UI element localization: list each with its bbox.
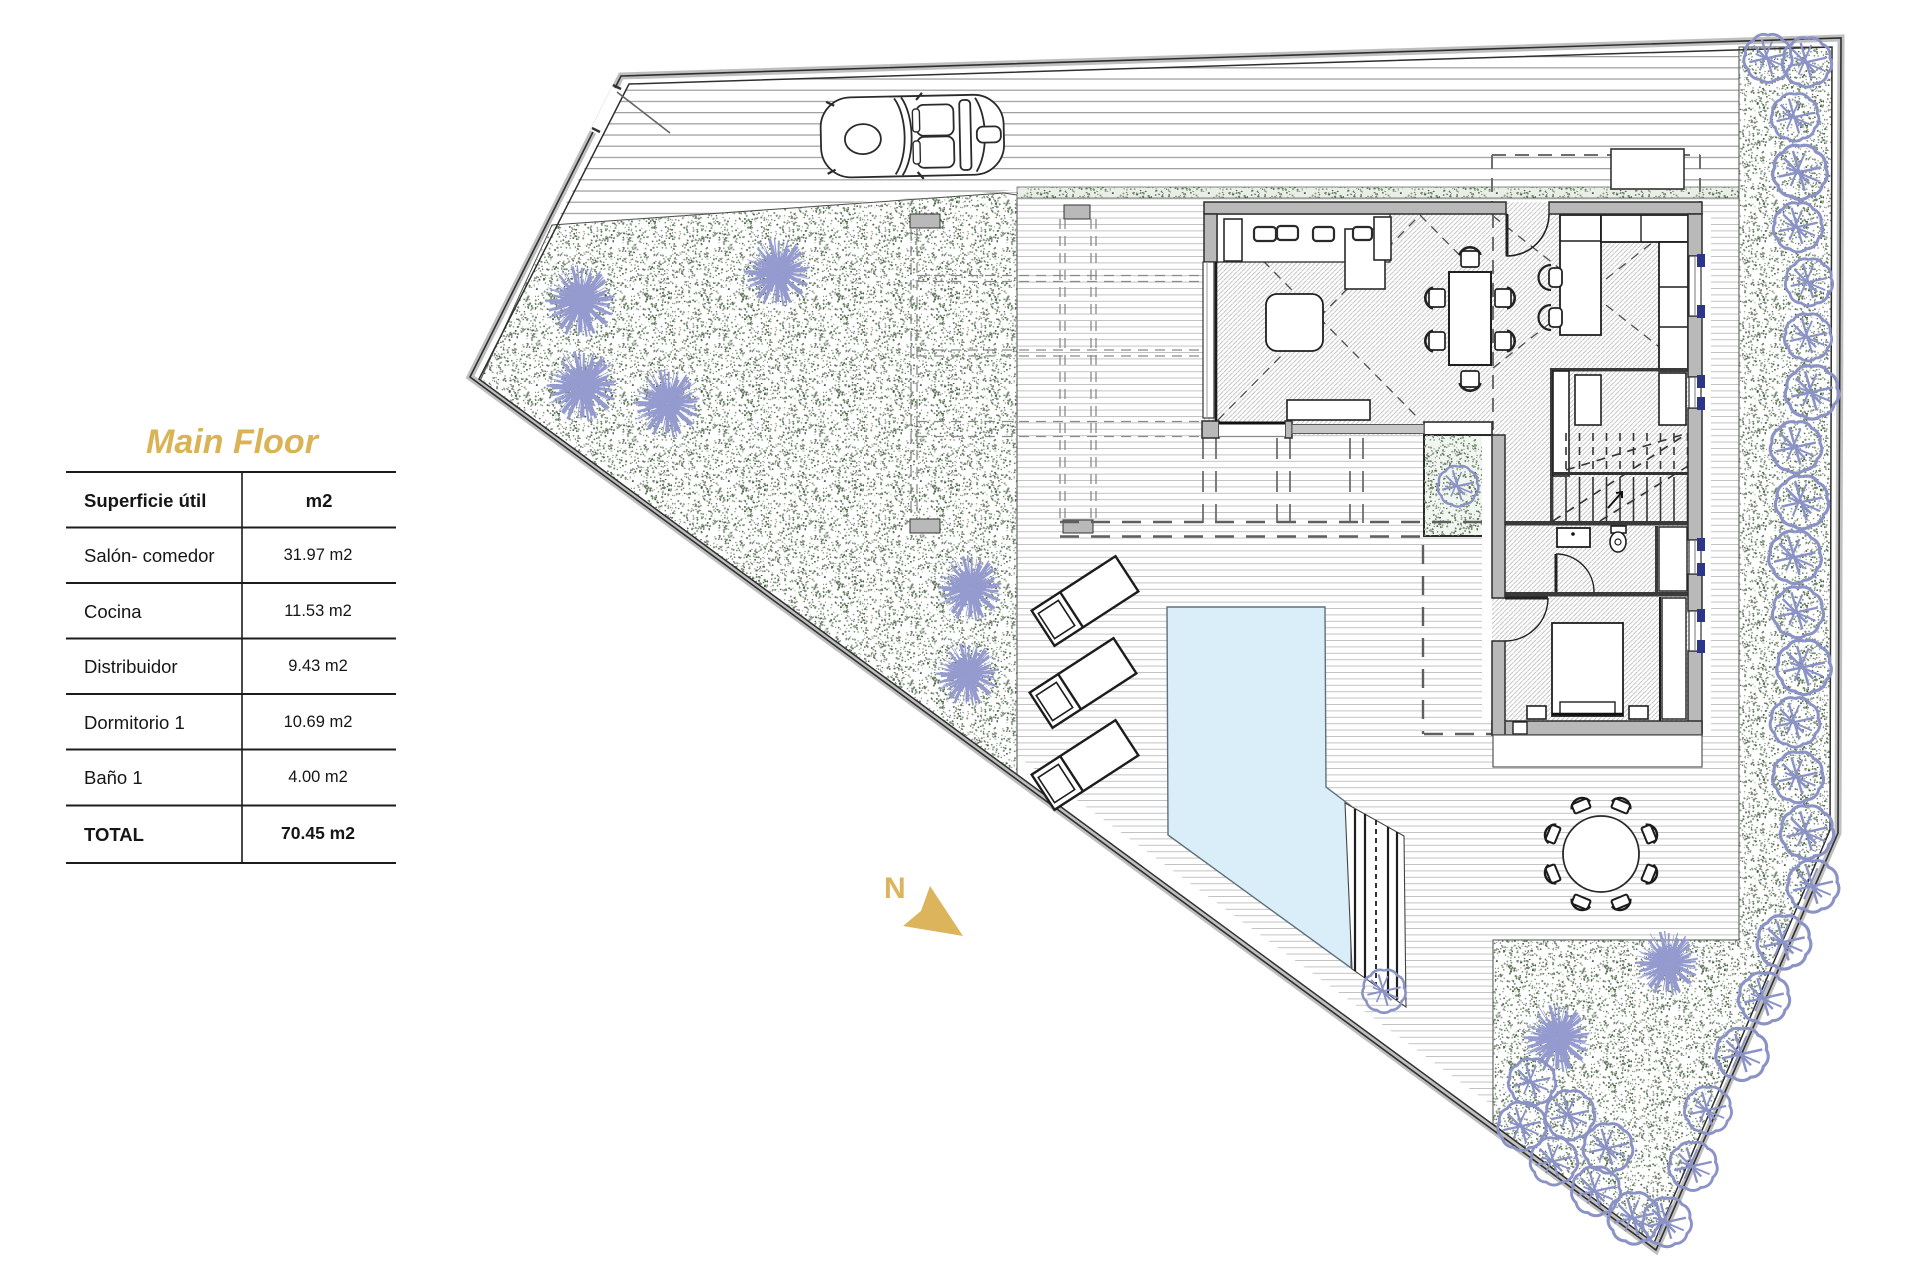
svg-text:11.53 m2: 11.53 m2	[284, 602, 352, 620]
svg-text:10.69 m2: 10.69 m2	[284, 713, 353, 731]
svg-text:TOTAL: TOTAL	[84, 824, 144, 845]
svg-text:Main Floor: Main Floor	[146, 423, 320, 461]
svg-text:Distribuidor: Distribuidor	[84, 656, 178, 677]
svg-text:70.45 m2: 70.45 m2	[281, 823, 355, 843]
svg-text:Baño 1: Baño 1	[84, 767, 143, 788]
svg-text:31.97 m2: 31.97 m2	[284, 546, 353, 564]
svg-text:Superficie útil: Superficie útil	[84, 490, 206, 511]
svg-text:4.00 m2: 4.00 m2	[288, 768, 348, 786]
svg-text:Dormitorio 1: Dormitorio 1	[84, 712, 185, 733]
svg-text:Cocina: Cocina	[84, 601, 142, 622]
svg-text:9.43 m2: 9.43 m2	[288, 657, 348, 675]
svg-text:N: N	[884, 872, 906, 905]
svg-text:m2: m2	[306, 490, 333, 511]
svg-text:Salón- comedor: Salón- comedor	[84, 545, 215, 566]
